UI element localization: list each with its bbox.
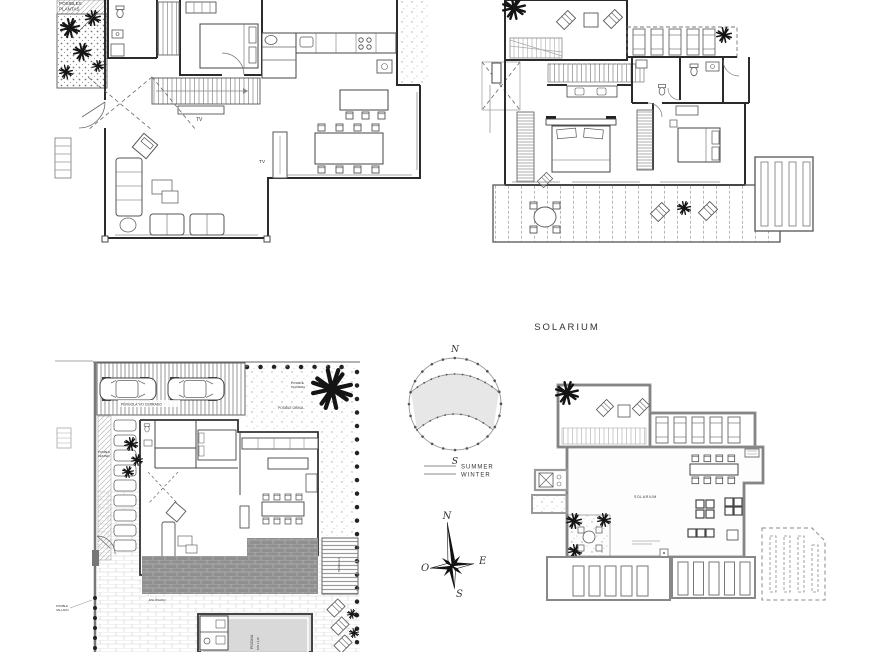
armchair [132, 133, 157, 158]
bedroom-2 [670, 106, 720, 162]
paving [97, 560, 142, 652]
palm-label: PALMERA [291, 385, 305, 389]
stairs [152, 78, 260, 104]
compass-rose: N E O S [421, 511, 487, 600]
pergola-label: PÉRGOLA [336, 557, 341, 572]
side-table [618, 405, 630, 417]
plan-first-floor [482, 0, 813, 242]
door-arc [723, 60, 739, 76]
coffee-table [162, 191, 178, 203]
solarium-heading: SOLARIUM [534, 322, 600, 333]
chillout-corner [567, 514, 611, 558]
plan-site: PÉRGOLA Y/O CERRADO POSIBLE PALMERA POSI… [55, 361, 360, 652]
gate-threshold [92, 550, 99, 566]
sofa [162, 522, 175, 558]
compass-east-label: E [478, 556, 487, 567]
paving-label: ENLOSADO [149, 598, 166, 602]
solarium-terrace [556, 382, 650, 447]
leader-line [70, 600, 92, 608]
lower-terrace [493, 185, 780, 242]
solarium-sunbeds [650, 413, 755, 447]
exterior-steps [57, 428, 71, 448]
wardrobe [517, 112, 534, 182]
pergola-band-right [672, 557, 755, 598]
exterior-steps [55, 138, 71, 178]
tv-cabinet [240, 506, 249, 528]
compass-west-label: O [421, 563, 429, 574]
winter-legend-label: WINTER [461, 473, 491, 479]
gravel-area [399, 0, 430, 84]
compass-star [426, 520, 477, 591]
bbq [535, 470, 567, 490]
compass-south-label: S [456, 589, 463, 600]
bidet [111, 44, 124, 56]
stairs [562, 428, 646, 444]
side-table [584, 13, 598, 27]
post [264, 236, 270, 242]
carport-label: PÉRGOLA Y/O CERRADO [121, 402, 162, 407]
solarium-room-label: SOLARIUM [634, 495, 657, 499]
ac-unit [745, 449, 759, 457]
living-room [116, 132, 287, 235]
sun-north-label: N [450, 345, 460, 355]
toilet-icon [144, 424, 150, 432]
bathroom [636, 60, 719, 100]
car-icon [168, 377, 224, 401]
dining-table [315, 124, 383, 173]
plan-ground-floor: POSIBLES PLANTAS [55, 0, 430, 242]
pergola-band-left [547, 557, 670, 600]
garden-label: PLANTAS [59, 7, 80, 12]
pergola-dashed [762, 528, 825, 600]
garden-pergola: PÉRGOLA [322, 538, 358, 594]
round-table [583, 531, 595, 543]
void-cross [482, 62, 520, 133]
pergola [755, 157, 813, 231]
entry-door-arc [79, 102, 105, 128]
side-table [120, 218, 136, 232]
kitchen-counter [242, 438, 318, 449]
kitchen-island [268, 458, 308, 469]
kitchen [262, 33, 396, 119]
tv-label: TV [259, 159, 266, 165]
sun-path-diagram: N S SUMMER WINTER [409, 345, 501, 479]
sofa [116, 158, 142, 216]
wardrobe [637, 110, 653, 170]
coffee-table [178, 536, 192, 546]
pool-label: PISCINA [250, 634, 254, 649]
fence-label: VALLADO [56, 608, 70, 612]
sink [112, 30, 123, 38]
floorplan-drawing: POSIBLES PLANTAS [0, 0, 870, 652]
lawn-label: CESPED [98, 454, 110, 458]
solarium-main: SOLARIUM [567, 447, 763, 557]
toilet-icon [116, 6, 124, 18]
plan-solarium: SOLARIUM [532, 382, 825, 600]
floorplan-sheet: POSIBLES PLANTAS [0, 0, 870, 652]
summer-legend-label: SUMMER [461, 465, 494, 471]
carport: PÉRGOLA Y/O CERRADO [97, 363, 245, 415]
planter-box [532, 495, 567, 513]
car-icon [100, 377, 156, 401]
pool-dimensions: 8,50 x 4,40 [256, 637, 260, 650]
post [102, 236, 108, 242]
master-bedroom [537, 116, 616, 188]
pool: PISCINA 8,50 x 4,40 [198, 614, 312, 652]
shower [158, 2, 179, 55]
coffee-table [186, 545, 197, 553]
desk [676, 106, 698, 115]
gravel-garden [320, 440, 356, 536]
compass-north-label: N [442, 511, 453, 522]
sunbed-terrace [627, 27, 737, 57]
tv-sideboard [178, 106, 224, 114]
palm-icon [717, 28, 731, 42]
tv-label: TV [196, 117, 203, 123]
garden-label: POSIBLES [59, 1, 82, 6]
bed [186, 2, 258, 68]
vanity [567, 86, 617, 97]
round-table [534, 207, 556, 227]
gravel-label: POSIBLE GRAVA [278, 406, 304, 410]
